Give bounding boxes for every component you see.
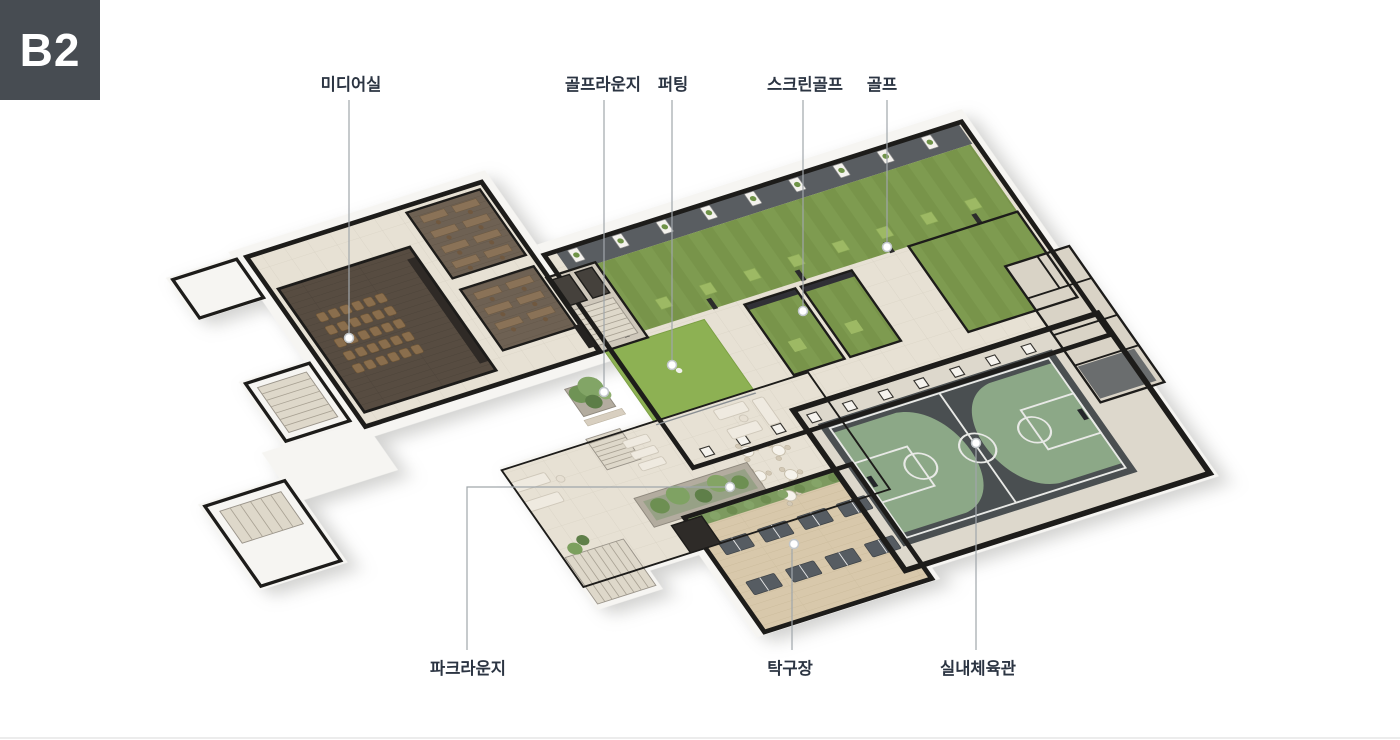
label-putting: 퍼팅 [658,74,688,96]
label-media-room: 미디어실 [321,74,382,96]
dot-golf [883,243,892,252]
label-golf-lounge: 골프라운지 [565,74,641,96]
bottom-border [0,737,1400,739]
floorplan-page: B2 미디어실 골프라운지 퍼팅 스크린골프 골프 파크라운지 탁구장 실내체육… [0,0,1400,740]
floorplan-canvas [0,0,1400,740]
label-park-lounge: 파크라운지 [430,658,506,680]
floor-badge: B2 [0,0,100,100]
label-table-tennis: 탁구장 [767,658,813,680]
dot-putting [668,361,677,370]
label-golf: 골프 [867,74,897,96]
dot-gymnasium [972,439,981,448]
label-screen-golf: 스크린골프 [767,74,843,96]
isometric-group [59,32,1236,740]
label-gymnasium: 실내체육관 [940,658,1016,680]
dot-golf-lounge [600,388,609,397]
dot-park-lounge [726,483,735,492]
dot-screen-golf [799,307,808,316]
dot-media-room [345,334,354,343]
dot-table-tennis [790,540,799,549]
